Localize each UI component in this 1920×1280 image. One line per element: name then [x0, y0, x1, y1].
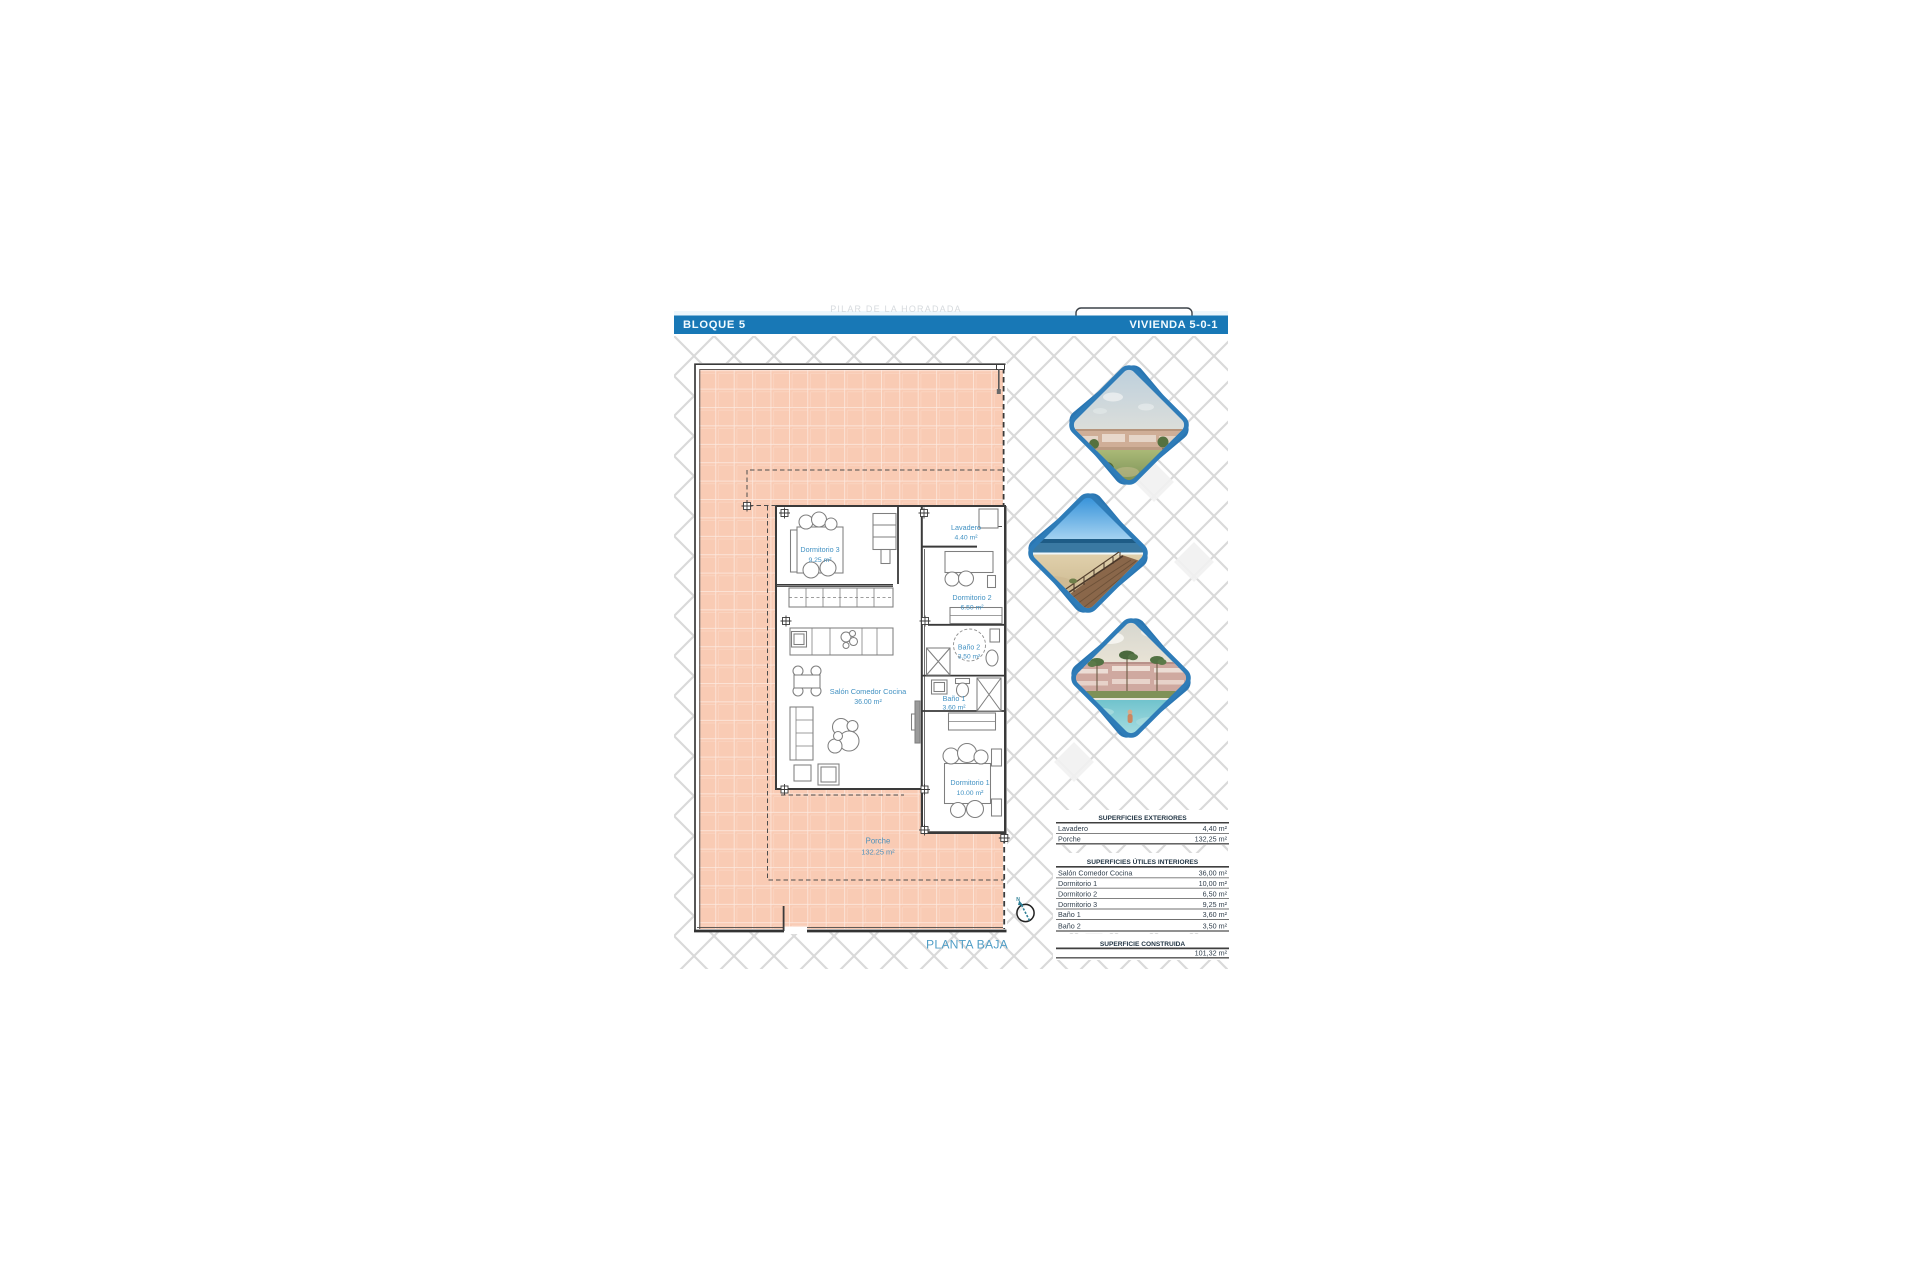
svg-text:132.25 m²: 132.25 m²	[861, 848, 895, 857]
svg-text:Baño 2: Baño 2	[1058, 922, 1081, 931]
svg-text:Baño 1: Baño 1	[943, 694, 966, 703]
svg-text:SUPERFICIE CONSTRUIDA: SUPERFICIE CONSTRUIDA	[1100, 941, 1186, 948]
svg-text:VIVIENDA 5-0-1: VIVIENDA 5-0-1	[1129, 319, 1218, 331]
svg-text:3,60 m²: 3,60 m²	[1203, 910, 1228, 919]
svg-text:Lavadero: Lavadero	[1058, 824, 1088, 833]
svg-text:Salón Comedor Cocina: Salón Comedor Cocina	[830, 687, 907, 696]
svg-text:3.50 m²: 3.50 m²	[958, 654, 981, 661]
svg-text:Salón Comedor Cocina: Salón Comedor Cocina	[1058, 869, 1132, 878]
svg-text:SUPERFICIES EXTERIORES: SUPERFICIES EXTERIORES	[1098, 815, 1187, 822]
svg-text:SUPERFICIES ÚTILES INTERIORES: SUPERFICIES ÚTILES INTERIORES	[1087, 857, 1199, 866]
svg-text:PILAR DE LA HORADADA: PILAR DE LA HORADADA	[830, 304, 962, 314]
svg-text:9,25 m²: 9,25 m²	[1203, 900, 1228, 909]
svg-text:10.00 m²: 10.00 m²	[957, 790, 985, 797]
svg-text:Baño 1: Baño 1	[1058, 910, 1081, 919]
svg-text:36.00 m²: 36.00 m²	[854, 699, 882, 706]
svg-text:PLANTA BAJA: PLANTA BAJA	[926, 938, 1009, 952]
svg-text:Porche: Porche	[1058, 834, 1081, 843]
svg-text:BLOQUE 5: BLOQUE 5	[683, 319, 746, 331]
svg-text:Dormitorio 3: Dormitorio 3	[1058, 900, 1097, 909]
svg-text:3,50 m²: 3,50 m²	[1203, 922, 1228, 931]
svg-text:Dormitorio 1: Dormitorio 1	[950, 778, 989, 787]
svg-text:Dormitorio 3: Dormitorio 3	[800, 545, 839, 554]
svg-text:36,00 m²: 36,00 m²	[1199, 869, 1228, 878]
svg-text:Dormitorio 2: Dormitorio 2	[1058, 889, 1097, 898]
svg-text:Porche: Porche	[866, 837, 891, 846]
svg-text:3.60 m²: 3.60 m²	[942, 705, 966, 712]
svg-text:Baño 2: Baño 2	[958, 645, 980, 652]
svg-text:132,25 m²: 132,25 m²	[1195, 834, 1228, 843]
svg-text:10,00 m²: 10,00 m²	[1199, 879, 1228, 888]
svg-text:N: N	[1016, 897, 1020, 903]
svg-text:Lavadero: Lavadero	[951, 523, 981, 532]
svg-text:101,32 m²: 101,32 m²	[1195, 949, 1228, 958]
svg-text:Dormitorio 2: Dormitorio 2	[952, 593, 991, 602]
svg-text:6,50 m²: 6,50 m²	[1203, 889, 1228, 898]
svg-text:6.50 m²: 6.50 m²	[960, 605, 984, 612]
svg-text:Dormitorio 1: Dormitorio 1	[1058, 879, 1097, 888]
svg-text:9.25 m²: 9.25 m²	[808, 557, 832, 564]
svg-text:4.40 m²: 4.40 m²	[954, 535, 978, 542]
svg-text:4,40 m²: 4,40 m²	[1203, 824, 1228, 833]
